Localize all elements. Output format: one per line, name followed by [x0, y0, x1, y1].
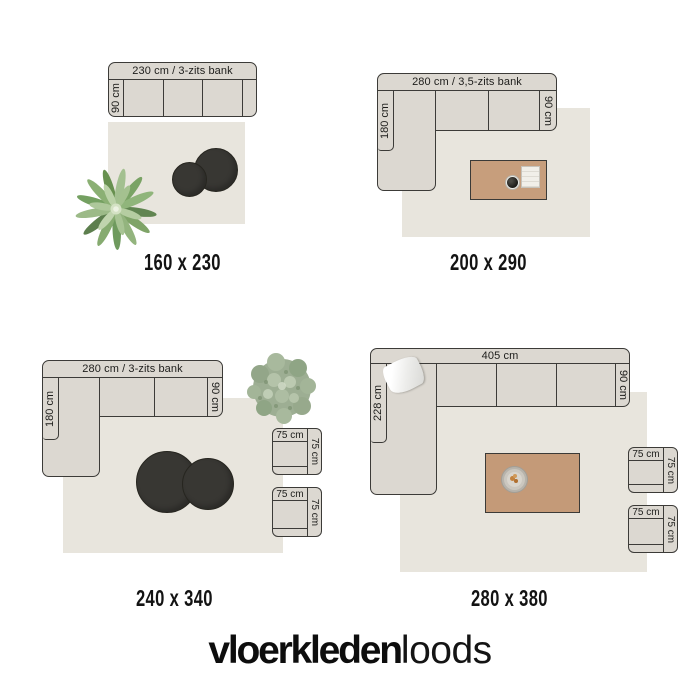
- armchair-side-armrest: 75 cm: [663, 506, 677, 552]
- sofa-depth-label: 90 cm: [110, 83, 122, 113]
- armchair-front-edge: [629, 484, 663, 492]
- sofa-chaise-armrest: 180 cm: [43, 378, 59, 440]
- corner-sofa: 280 cm / 3-zits bank 90 cm 180 cm: [42, 360, 223, 477]
- sofa-left-armrest: 90 cm: [109, 80, 124, 116]
- sofa-depth-label: 90 cm: [616, 370, 628, 400]
- sofa-chaise: 180 cm: [42, 378, 100, 477]
- armchair: 75 cm 75 cm: [272, 428, 322, 475]
- rug-size-text: 200 x 290: [450, 249, 527, 276]
- armchair-depth-label: 75 cm: [665, 515, 676, 542]
- armchair-body: 75 cm: [273, 429, 307, 474]
- rug-size-text: 240 x 340: [136, 585, 213, 612]
- armchair-front-edge: [273, 466, 307, 474]
- armchair-depth-label: 75 cm: [309, 498, 320, 525]
- sofa-length-label: 280 cm / 3,5-zits bank: [378, 74, 556, 91]
- sofa-right-armrest: [242, 80, 256, 116]
- rug-size-text: 160 x 230: [144, 249, 221, 276]
- sofa-depth-label: 90 cm: [542, 96, 554, 126]
- brand-name-bold: vloerkleden: [208, 629, 401, 673]
- sofa-chaise-armrest: 180 cm: [378, 91, 394, 151]
- pouf-small: [182, 458, 234, 510]
- rug-size-label: 280 x 380: [424, 585, 594, 612]
- sofa-seat: [438, 364, 496, 406]
- fruit-dot: [514, 479, 518, 483]
- sofa-right-armrest: 90 cm: [615, 364, 629, 406]
- sofa-seat: [488, 91, 540, 130]
- sofa-seat: [163, 80, 203, 116]
- armchair-width-label: 75 cm: [629, 506, 663, 519]
- sofa-seat-row: 90 cm: [109, 80, 256, 116]
- armchair-side-armrest: 75 cm: [307, 488, 321, 536]
- armchair-front-edge: [273, 528, 307, 536]
- armchair-width-label: 75 cm: [629, 448, 663, 461]
- plate-center: [507, 472, 522, 487]
- sofa-length-label: 280 cm / 3-zits bank: [43, 361, 222, 378]
- sofa-seat: [437, 91, 488, 130]
- armchair-depth-label: 75 cm: [665, 456, 676, 483]
- sofa-seat: [496, 364, 555, 406]
- armchair-seat: [629, 461, 663, 484]
- plate-rim: [504, 469, 525, 490]
- plant-icon: [74, 167, 158, 251]
- pillow-shape: [380, 352, 429, 398]
- armchair-body: 75 cm: [629, 506, 663, 552]
- armchair-seat: [629, 519, 663, 544]
- armchair: 75 cm 75 cm: [272, 487, 322, 537]
- sofa-seat: [154, 378, 208, 416]
- armchair: 75 cm 75 cm: [628, 505, 678, 553]
- armchair-width-label: 75 cm: [273, 488, 307, 501]
- sofa-seat: [124, 80, 163, 116]
- fruit-dot: [513, 474, 517, 478]
- sofa-right-armrest: 90 cm: [539, 91, 556, 130]
- book-icon: [521, 166, 540, 188]
- armchair-body: 75 cm: [273, 488, 307, 536]
- bush-plant-icon: [246, 352, 318, 424]
- rug-size-text: 280 x 380: [471, 585, 548, 612]
- sofa-chaise: 180 cm: [377, 91, 436, 191]
- fruit-plate-icon: [501, 466, 528, 493]
- armchair: 75 cm 75 cm: [628, 447, 678, 493]
- armchair-side-armrest: 75 cm: [663, 448, 677, 492]
- armchair-width-label: 75 cm: [273, 429, 307, 442]
- pillow-icon: [380, 354, 430, 398]
- sofa-seat: [556, 364, 615, 406]
- sofa-seat: [202, 80, 242, 116]
- rug-size-label: 200 x 290: [403, 249, 573, 276]
- bowl-icon: [507, 177, 518, 188]
- armchair-body: 75 cm: [629, 448, 663, 492]
- armchair-side-armrest: 75 cm: [307, 429, 321, 474]
- armchair-depth-label: 75 cm: [309, 438, 320, 465]
- brand-logo: vloerkledenloods: [0, 629, 700, 673]
- sofa-chaise-length-label: 180 cm: [45, 390, 57, 426]
- rug-size-label: 160 x 230: [97, 249, 267, 276]
- armchair-front-edge: [629, 544, 663, 552]
- sofa-length-label: 230 cm / 3-zits bank: [109, 63, 256, 80]
- sofa-right-armrest: 90 cm: [207, 378, 222, 416]
- sofa-3-seat: 230 cm / 3-zits bank 90 cm: [108, 62, 257, 117]
- pouf-small: [172, 162, 207, 197]
- armchair-seat: [273, 442, 307, 466]
- brand-name-light: loods: [401, 629, 492, 673]
- sofa-chaise-length-label: 180 cm: [380, 102, 392, 138]
- armchair-seat: [273, 501, 307, 528]
- rug-size-label: 240 x 340: [89, 585, 259, 612]
- sofa-seat: [101, 378, 154, 416]
- sofa-depth-label: 90 cm: [209, 382, 221, 412]
